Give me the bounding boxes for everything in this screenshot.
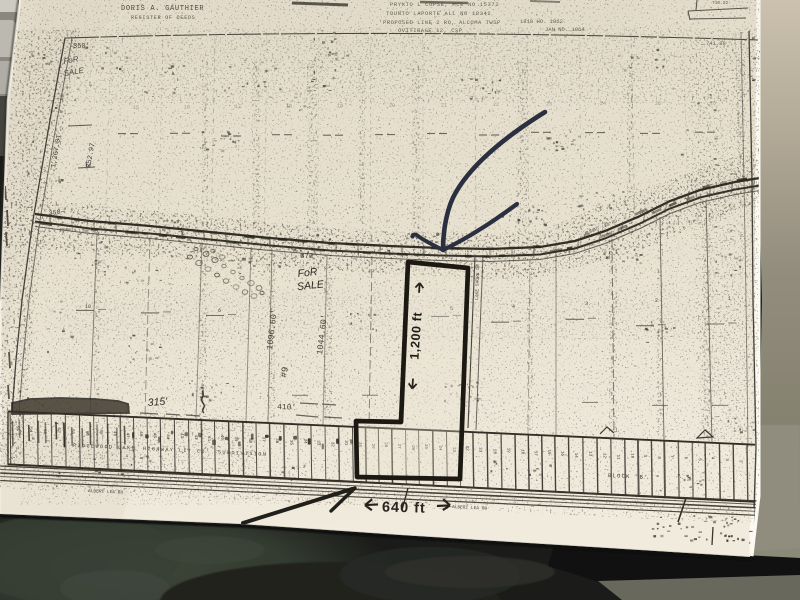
svg-text:15: 15 <box>559 451 563 457</box>
svg-text:10: 10 <box>629 453 633 459</box>
svg-text:22: 22 <box>493 102 499 108</box>
svg-text:1: 1 <box>728 296 731 302</box>
svg-text:46: 46 <box>138 431 142 437</box>
svg-text:34: 34 <box>302 439 306 445</box>
svg-text:16: 16 <box>546 449 550 455</box>
svg-text:11: 11 <box>615 455 619 461</box>
svg-text:38: 38 <box>247 438 251 444</box>
svg-text:21: 21 <box>477 447 481 453</box>
svg-text:35: 35 <box>288 440 292 446</box>
svg-text:52: 52 <box>56 428 60 434</box>
svg-text:42: 42 <box>193 435 197 441</box>
svg-text:20: 20 <box>389 103 395 109</box>
svg-text:JAN NO. 1864: JAN NO. 1864 <box>545 26 585 33</box>
svg-text:55: 55 <box>15 426 19 432</box>
svg-text:20: 20 <box>492 449 496 455</box>
svg-text:2: 2 <box>655 298 658 304</box>
svg-text:6: 6 <box>218 308 221 314</box>
svg-text:LAKE SHORE DR: LAKE SHORE DR <box>474 264 481 300</box>
svg-text:47: 47 <box>125 433 129 439</box>
svg-text:48: 48 <box>112 431 116 437</box>
svg-text:44: 44 <box>165 434 169 440</box>
svg-text:36: 36 <box>274 438 278 444</box>
svg-text:710.22: 710.22 <box>712 0 729 6</box>
svg-text:32: 32 <box>330 442 334 448</box>
svg-text:17: 17 <box>235 104 241 110</box>
svg-text:4: 4 <box>512 304 515 310</box>
svg-text:33: 33 <box>315 440 319 446</box>
svg-text:640 ft: 640 ft <box>382 500 426 517</box>
svg-text:53: 53 <box>42 429 46 435</box>
svg-text:410': 410' <box>277 403 297 413</box>
svg-text:21: 21 <box>441 103 447 109</box>
svg-text:31: 31 <box>343 440 347 446</box>
svg-text:26: 26 <box>710 100 716 106</box>
svg-text:41: 41 <box>206 436 210 442</box>
svg-text:50: 50 <box>84 431 88 437</box>
svg-text:350': 350' <box>73 43 90 51</box>
svg-text:TOUNTO LAPORTE ALL NO 18342: TOUNTO LAPORTE ALL NO 18342 <box>386 10 491 17</box>
svg-text:19: 19 <box>506 448 510 454</box>
svg-text:22: 22 <box>464 446 468 452</box>
svg-text:1818 HO. 1862: 1818 HO. 1862 <box>520 18 563 25</box>
svg-text:12: 12 <box>602 453 606 459</box>
svg-text:741.88: 741.88 <box>706 40 726 47</box>
svg-text:49: 49 <box>98 429 102 435</box>
svg-text:13: 13 <box>587 451 591 457</box>
svg-text:40: 40 <box>219 435 223 441</box>
svg-text:17: 17 <box>533 451 537 457</box>
svg-text:24: 24 <box>600 101 606 107</box>
svg-text:25: 25 <box>655 101 661 107</box>
svg-text:3: 3 <box>585 301 588 307</box>
svg-text:37: 37 <box>261 437 265 443</box>
svg-text:10: 10 <box>85 304 91 310</box>
svg-text:DORIS A. GAUTHIER: DORIS A. GAUTHIER <box>121 5 204 13</box>
svg-text:15: 15 <box>133 105 139 111</box>
svg-text:350: 350 <box>48 209 60 217</box>
svg-text:39: 39 <box>233 436 237 442</box>
svg-text:19: 19 <box>337 103 343 109</box>
svg-text:23: 23 <box>546 102 552 108</box>
svg-text:51: 51 <box>70 429 74 435</box>
svg-text:PROPOSED LINE 2 RO, ALCOMA TWS: PROPOSED LINE 2 RO, ALCOMA TWSP <box>383 19 501 26</box>
svg-text:14: 14 <box>573 453 577 459</box>
svg-text:OVITIBAGE 12, CSP: OVITIBAGE 12, CSP <box>398 27 463 34</box>
svg-text:45: 45 <box>152 433 156 439</box>
svg-text:43: 43 <box>179 433 183 439</box>
svg-text:16: 16 <box>184 105 190 111</box>
svg-text:REGISTER OF DEEDS: REGISTER OF DEEDS <box>131 15 196 21</box>
svg-text:54: 54 <box>28 427 32 433</box>
svg-text:#9: #9 <box>279 366 291 378</box>
svg-text:18: 18 <box>520 449 524 455</box>
svg-text:FoR: FoR <box>297 266 318 280</box>
svg-text:315': 315' <box>147 396 168 409</box>
